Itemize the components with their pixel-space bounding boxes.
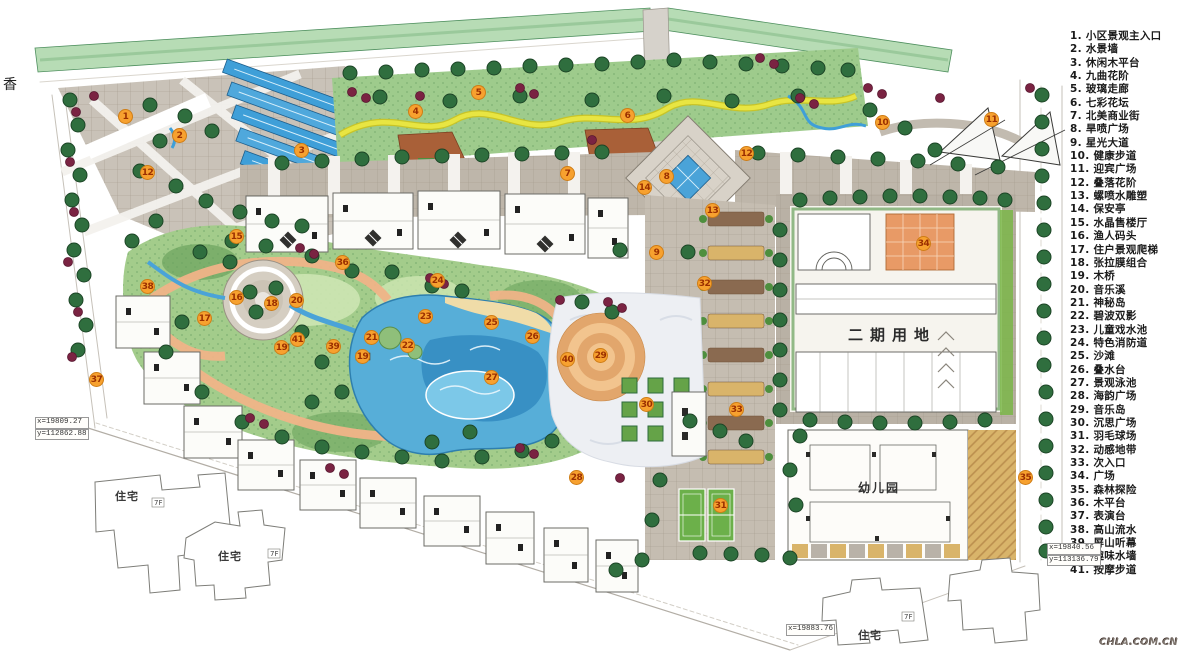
- tree-icon: [475, 148, 489, 162]
- tree-icon: [793, 429, 807, 443]
- legend-item-9: 9. 星光大道: [1070, 137, 1161, 150]
- tree-icon: [683, 414, 697, 428]
- tree-icon: [739, 434, 753, 448]
- legend-item-30: 30. 沉思广场: [1070, 417, 1161, 430]
- tree-icon: [1035, 142, 1049, 156]
- tree-icon: [259, 239, 273, 253]
- tree-icon: [65, 193, 79, 207]
- plan-canvas: 二期用地 幼儿园 住宅 住宅 住宅 7F 7F 7F: [0, 0, 1181, 652]
- paving-strip: [849, 544, 865, 558]
- tree-icon: [595, 145, 609, 159]
- paving-strip: [811, 544, 827, 558]
- legend-item-4: 4. 九曲花阶: [1070, 70, 1161, 83]
- tree-icon: [295, 219, 309, 233]
- tree-icon: [233, 205, 247, 219]
- tree-icon: [943, 190, 957, 204]
- legend-item-25: 25. 沙滩: [1070, 350, 1161, 363]
- planting-bar: [708, 246, 764, 260]
- tree-icon: [803, 413, 817, 427]
- planting-bar: [708, 212, 764, 226]
- shrub-icon: [246, 414, 255, 423]
- tree-icon: [791, 148, 805, 162]
- tree-icon: [175, 315, 189, 329]
- hedge-square: [648, 426, 663, 441]
- tree-icon: [657, 89, 671, 103]
- tree-icon: [773, 253, 787, 267]
- tree-icon: [973, 191, 987, 205]
- tree-icon: [793, 193, 807, 207]
- planting-bar: [708, 382, 764, 396]
- tree-icon: [523, 59, 537, 73]
- legend-item-3: 3. 休闲木平台: [1070, 57, 1161, 70]
- legend-item-31: 31. 羽毛球场: [1070, 430, 1161, 443]
- tree-icon: [838, 415, 852, 429]
- tree-icon: [463, 425, 477, 439]
- tree-icon: [75, 218, 89, 232]
- planting-bar: [708, 314, 764, 328]
- tree-icon: [609, 563, 623, 577]
- tree-icon: [783, 551, 797, 565]
- hedge-square: [648, 402, 663, 417]
- tree-icon: [133, 164, 147, 178]
- legend-item-27: 27. 景观泳池: [1070, 377, 1161, 390]
- tree-icon: [1037, 358, 1051, 372]
- tree-icon: [724, 547, 738, 561]
- tree-icon: [269, 281, 283, 295]
- tree-icon: [873, 416, 887, 430]
- tree-icon: [595, 57, 609, 71]
- legend-item-18: 18. 张拉膜组合: [1070, 257, 1161, 270]
- paving-strip: [925, 544, 941, 558]
- tree-icon: [305, 395, 319, 409]
- residential-label: 住宅: [218, 549, 242, 563]
- legend-item-36: 36. 木平台: [1070, 497, 1161, 510]
- tree-icon: [978, 413, 992, 427]
- tree-icon: [1037, 196, 1051, 210]
- legend-item-6: 6. 七彩花坛: [1070, 97, 1161, 110]
- shrub-icon: [936, 94, 945, 103]
- tree-icon: [451, 62, 465, 76]
- tree-icon: [1037, 277, 1051, 291]
- street-name-label: 香: [3, 74, 17, 94]
- planting-bar: [708, 348, 764, 362]
- tree-icon: [343, 66, 357, 80]
- tree-icon: [153, 134, 167, 148]
- shrub-icon: [530, 450, 539, 459]
- tree-icon: [943, 415, 957, 429]
- tree-icon: [783, 463, 797, 477]
- paving-strip: [830, 544, 846, 558]
- tree-icon: [631, 55, 645, 69]
- kindergarten-block: [788, 430, 1016, 560]
- tree-icon: [789, 498, 803, 512]
- shrub-icon: [348, 88, 357, 97]
- tree-icon: [249, 305, 263, 319]
- tree-icon: [951, 157, 965, 171]
- shrub-icon: [260, 420, 269, 429]
- shrub-icon: [70, 208, 79, 217]
- coordinate-label-right: x=19840.56y=113136.79: [1047, 543, 1101, 566]
- tree-icon: [645, 513, 659, 527]
- tree-icon: [559, 58, 573, 72]
- shrub-icon: [72, 108, 81, 117]
- watermark: CHLA.COM.CN: [1100, 637, 1178, 648]
- tree-icon: [169, 179, 183, 193]
- tree-icon: [555, 146, 569, 160]
- tree-icon: [863, 103, 877, 117]
- shrub-icon: [588, 136, 597, 145]
- tree-icon: [69, 293, 83, 307]
- island: [379, 327, 401, 349]
- tree-icon: [841, 63, 855, 77]
- tree-icon: [205, 124, 219, 138]
- legend-item-14: 14. 保安亭: [1070, 203, 1161, 216]
- swimming-pool: [426, 371, 514, 419]
- legend-item-12: 12. 叠落花阶: [1070, 177, 1161, 190]
- tree-icon: [751, 146, 765, 160]
- shrub-icon: [810, 100, 819, 109]
- tree-icon: [871, 152, 885, 166]
- tree-icon: [667, 53, 681, 67]
- tree-icon: [773, 403, 787, 417]
- tree-icon: [487, 61, 501, 75]
- shrub-icon: [310, 250, 319, 259]
- legend-item-29: 29. 音乐岛: [1070, 404, 1161, 417]
- tree-icon: [998, 193, 1012, 207]
- tree-icon: [773, 373, 787, 387]
- wood-bridge: [356, 353, 370, 360]
- tree-icon: [373, 90, 387, 104]
- phase2-label: 二期用地: [848, 326, 936, 344]
- tree-icon: [77, 268, 91, 282]
- tree-icon: [335, 385, 349, 399]
- shrub-icon: [604, 298, 613, 307]
- arch-building: [798, 214, 870, 270]
- hedge-square: [622, 426, 637, 441]
- tree-icon: [605, 305, 619, 319]
- tree-icon: [1039, 466, 1053, 480]
- kindergarten-label: 幼儿园: [858, 480, 900, 495]
- legend-item-26: 26. 叠水台: [1070, 364, 1161, 377]
- shrub-icon: [618, 304, 627, 313]
- legend-item-24: 24. 特色消防道: [1070, 337, 1161, 350]
- planting-bar: [708, 450, 764, 464]
- wood-bridge: [275, 344, 289, 351]
- tree-icon: [898, 121, 912, 135]
- legend-item-28: 28. 海韵广场: [1070, 390, 1161, 403]
- tree-icon: [435, 454, 449, 468]
- tree-icon: [443, 94, 457, 108]
- legend-item-10: 10. 健康步道: [1070, 150, 1161, 163]
- tree-icon: [149, 214, 163, 228]
- tree-icon: [275, 156, 289, 170]
- tree-icon: [853, 190, 867, 204]
- legend-item-17: 17. 住户景观爬梯: [1070, 244, 1161, 257]
- shrub-icon: [516, 84, 525, 93]
- paving-strip: [906, 544, 922, 558]
- legend-item-20: 20. 音乐溪: [1070, 284, 1161, 297]
- legend-list: 1. 小区景观主入口2. 水景墙3. 休闲木平台4. 九曲花阶5. 玻璃走廊6.…: [1070, 30, 1161, 577]
- shrub-icon: [756, 54, 765, 63]
- shrub-icon: [616, 474, 625, 483]
- tree-icon: [315, 440, 329, 454]
- tree-icon: [159, 345, 173, 359]
- hedge-square: [648, 378, 663, 393]
- legend-item-21: 21. 神秘岛: [1070, 297, 1161, 310]
- tree-icon: [773, 343, 787, 357]
- tree-icon: [823, 191, 837, 205]
- island: [408, 345, 422, 359]
- floor-label: 7F: [270, 550, 278, 558]
- tree-icon: [693, 546, 707, 560]
- shrub-icon: [426, 274, 435, 283]
- tree-icon: [425, 435, 439, 449]
- tree-icon: [385, 265, 399, 279]
- legend-item-1: 1. 小区景观主入口: [1070, 30, 1161, 43]
- paving-strip: [944, 544, 960, 558]
- legend-item-7: 7. 北美商业街: [1070, 110, 1161, 123]
- shrub-icon: [770, 60, 779, 69]
- shrub-icon: [878, 90, 887, 99]
- shrub-icon: [530, 90, 539, 99]
- tree-icon: [73, 168, 87, 182]
- tree-icon: [773, 313, 787, 327]
- tree-icon: [265, 214, 279, 228]
- tree-icon: [725, 94, 739, 108]
- tree-icon: [71, 118, 85, 132]
- hedge-square: [674, 378, 689, 393]
- legend-item-5: 5. 玻璃走廊: [1070, 83, 1161, 96]
- tree-icon: [991, 160, 1005, 174]
- shrub-icon: [90, 92, 99, 101]
- floor-label: 7F: [154, 499, 162, 507]
- tree-icon: [1037, 223, 1051, 237]
- legend-item-23: 23. 儿童戏水池: [1070, 324, 1161, 337]
- shrub-icon: [796, 94, 805, 103]
- legend-item-38: 38. 高山流水: [1070, 524, 1161, 537]
- hedge-square: [622, 378, 637, 393]
- tree-icon: [755, 548, 769, 562]
- tree-icon: [79, 318, 93, 332]
- tree-icon: [225, 234, 239, 248]
- tree-icon: [883, 189, 897, 203]
- legend-item-35: 35. 森林探险: [1070, 484, 1161, 497]
- tree-icon: [928, 143, 942, 157]
- tree-icon: [193, 245, 207, 259]
- tree-icon: [395, 450, 409, 464]
- tree-icon: [223, 255, 237, 269]
- tree-icon: [199, 194, 213, 208]
- tree-icon: [1035, 115, 1049, 129]
- tree-icon: [1035, 169, 1049, 183]
- tree-icon: [1037, 331, 1051, 345]
- tree-icon: [475, 450, 489, 464]
- shrub-icon: [1026, 84, 1035, 93]
- tree-icon: [908, 416, 922, 430]
- tree-icon: [61, 143, 75, 157]
- legend-item-37: 37. 表演台: [1070, 510, 1161, 523]
- tree-icon: [773, 223, 787, 237]
- residential-label: 住宅: [115, 489, 139, 503]
- tree-icon: [379, 65, 393, 79]
- legend-item-22: 22. 碧波双影: [1070, 310, 1161, 323]
- shrub-icon: [440, 280, 449, 289]
- shrub-icon: [864, 84, 873, 93]
- tree-icon: [315, 154, 329, 168]
- tree-icon: [315, 355, 329, 369]
- shrub-icon: [556, 296, 565, 305]
- tree-icon: [455, 284, 469, 298]
- residential-label: 住宅: [858, 628, 882, 642]
- legend-item-11: 11. 迎宾广场: [1070, 163, 1161, 176]
- tree-icon: [1039, 385, 1053, 399]
- shrub-icon: [516, 444, 525, 453]
- tree-icon: [613, 243, 627, 257]
- tree-icon: [681, 245, 695, 259]
- tree-icon: [739, 57, 753, 71]
- shrub-icon: [340, 470, 349, 479]
- tree-icon: [395, 150, 409, 164]
- tree-icon: [295, 325, 309, 339]
- shrub-icon: [296, 244, 305, 253]
- tree-icon: [515, 147, 529, 161]
- tree-icon: [435, 149, 449, 163]
- circular-plaza: [223, 260, 303, 340]
- east-plaza: [549, 293, 706, 467]
- paving-strip: [868, 544, 884, 558]
- tree-icon: [67, 243, 81, 257]
- coordinate-label-bottom: x=19883.76: [786, 624, 835, 636]
- hedge-square: [622, 402, 637, 417]
- tree-icon: [275, 430, 289, 444]
- tree-icon: [575, 295, 589, 309]
- tree-icon: [1039, 493, 1053, 507]
- tree-icon: [178, 109, 192, 123]
- tree-icon: [1037, 304, 1051, 318]
- tree-icon: [63, 93, 77, 107]
- tree-icon: [1035, 88, 1049, 102]
- tree-icon: [545, 434, 559, 448]
- tree-icon: [831, 150, 845, 164]
- tree-icon: [713, 424, 727, 438]
- legend-item-32: 32. 动感地带: [1070, 444, 1161, 457]
- planting-bar: [708, 280, 764, 294]
- tree-icon: [773, 283, 787, 297]
- tree-icon: [653, 473, 667, 487]
- floor-label: 7F: [904, 613, 912, 621]
- tree-icon: [1039, 520, 1053, 534]
- legend-item-33: 33. 次入口: [1070, 457, 1161, 470]
- shrub-icon: [74, 308, 83, 317]
- tree-icon: [355, 152, 369, 166]
- tree-icon: [913, 189, 927, 203]
- shrub-icon: [362, 94, 371, 103]
- tree-icon: [585, 93, 599, 107]
- tree-icon: [125, 234, 139, 248]
- tree-icon: [703, 55, 717, 69]
- shrub-icon: [326, 464, 335, 473]
- tree-icon: [345, 264, 359, 278]
- tree-icon: [1037, 250, 1051, 264]
- legend-item-15: 15. 水晶售楼厅: [1070, 217, 1161, 230]
- legend-item-19: 19. 木桥: [1070, 270, 1161, 283]
- tree-icon: [415, 63, 429, 77]
- shrub-icon: [416, 92, 425, 101]
- tree-icon: [811, 61, 825, 75]
- tree-icon: [355, 445, 369, 459]
- tree-icon: [195, 385, 209, 399]
- legend-item-2: 2. 水景墙: [1070, 43, 1161, 56]
- legend-item-8: 8. 旱喷广场: [1070, 123, 1161, 136]
- shrub-icon: [66, 158, 75, 167]
- shrub-icon: [68, 353, 77, 362]
- tree-icon: [143, 98, 157, 112]
- tree-icon: [243, 285, 257, 299]
- legend-item-16: 16. 渔人码头: [1070, 230, 1161, 243]
- legend-item-34: 34. 广场: [1070, 470, 1161, 483]
- tree-icon: [1039, 412, 1053, 426]
- tree-icon: [911, 154, 925, 168]
- tree-icon: [635, 553, 649, 567]
- paving-strip: [887, 544, 903, 558]
- legend-item-13: 13. 螺喷水雕塑: [1070, 190, 1161, 203]
- phase2-block: [776, 194, 1016, 424]
- coordinate-label-left: x=19809.27y=112862.88: [35, 417, 89, 440]
- site-plan-page: 二期用地 幼儿园 住宅 住宅 住宅 7F 7F 7F 1234567891011…: [0, 0, 1181, 652]
- tree-icon: [1039, 439, 1053, 453]
- shrub-icon: [64, 258, 73, 267]
